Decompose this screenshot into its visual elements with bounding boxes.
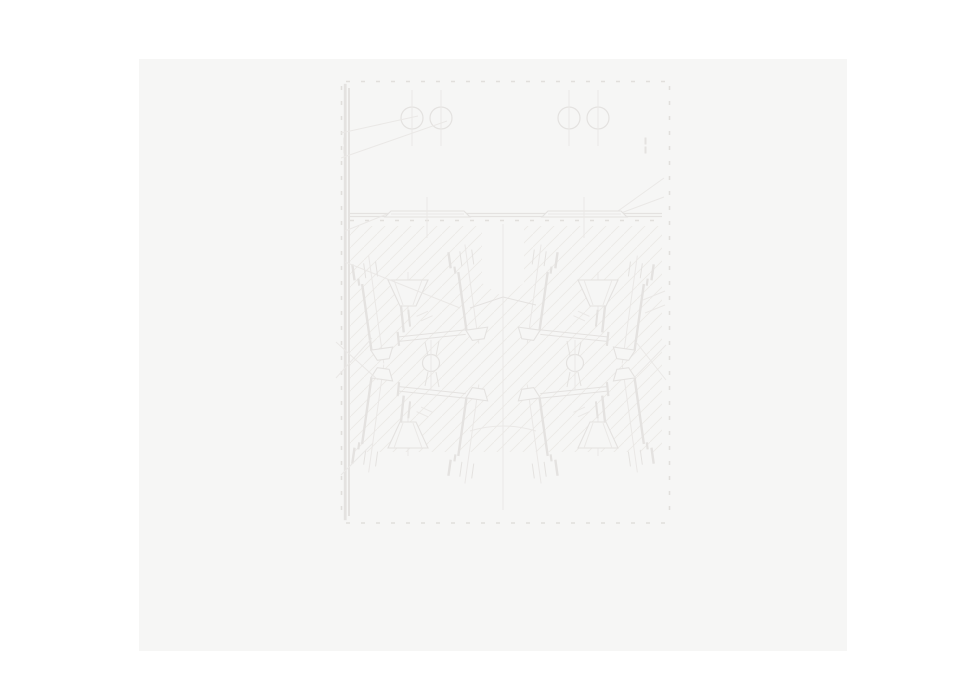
wall-tab-right-lower [645, 147, 646, 153]
page [0, 0, 961, 694]
wall-tab-left-lower [344, 147, 345, 153]
layer-under [139, 59, 847, 651]
frame-inner-border [349, 89, 350, 516]
technical-drawing-canvas[interactable] [0, 0, 961, 694]
wall-tab-left-upper [344, 138, 345, 144]
wall-tab-right-upper [645, 138, 646, 144]
